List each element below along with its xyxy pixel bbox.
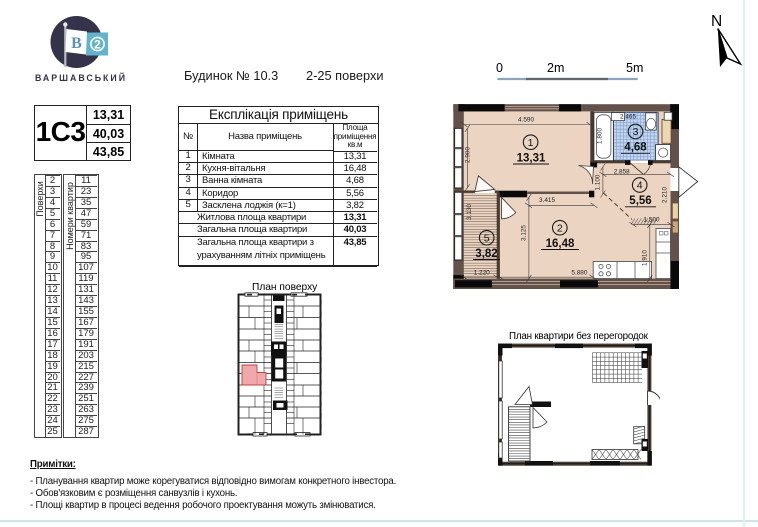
svg-text:2: 2 xyxy=(557,222,563,234)
svg-text:4: 4 xyxy=(637,180,643,192)
svg-text:N: N xyxy=(711,13,722,30)
svg-text:4,68: 4,68 xyxy=(624,142,647,154)
svg-text:1.800: 1.800 xyxy=(597,128,604,144)
svg-text:1.220: 1.220 xyxy=(474,269,490,276)
svg-text:2.210: 2.210 xyxy=(662,187,669,203)
svg-text:3.125: 3.125 xyxy=(520,225,527,241)
svg-text:2.465: 2.465 xyxy=(620,114,636,121)
svg-text:ВАРШАВСЬКИЙ: ВАРШАВСЬКИЙ xyxy=(35,72,127,83)
svg-text:13,31: 13,31 xyxy=(517,152,546,164)
svg-text:В: В xyxy=(71,35,82,52)
svg-text:5,56: 5,56 xyxy=(629,195,651,207)
svg-text:4.590: 4.590 xyxy=(518,117,534,124)
svg-text:5: 5 xyxy=(484,232,490,244)
svg-text:1: 1 xyxy=(528,137,534,149)
svg-text:1.100: 1.100 xyxy=(594,174,601,190)
svg-text:3,82: 3,82 xyxy=(475,248,497,260)
svg-text:5m: 5m xyxy=(626,61,643,75)
svg-text:5.880: 5.880 xyxy=(571,269,587,276)
svg-text:16,48: 16,48 xyxy=(546,238,575,250)
svg-text:0: 0 xyxy=(496,61,503,75)
svg-text:1.910: 1.910 xyxy=(641,250,648,266)
svg-text:3.130: 3.130 xyxy=(466,204,473,220)
svg-text:3.415: 3.415 xyxy=(539,197,555,204)
svg-text:3: 3 xyxy=(633,126,639,138)
svg-text:2.900: 2.900 xyxy=(465,147,472,163)
svg-text:2: 2 xyxy=(94,38,101,52)
svg-text:2m: 2m xyxy=(547,61,564,75)
